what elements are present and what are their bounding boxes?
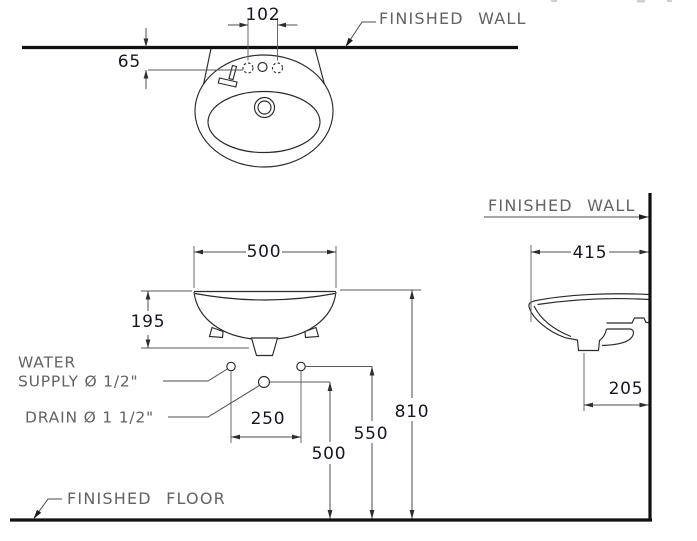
dim-value-65: 65: [118, 52, 141, 72]
drawing-canvas: 102 65 FINISHED WALL: [0, 0, 697, 541]
leader-arrow-icon: [346, 38, 353, 47]
basin-installation-drawing: 102 65 FINISHED WALL: [0, 0, 697, 541]
mounting-bracket-inner: [602, 329, 633, 346]
arrowhead-icon: [144, 70, 149, 79]
leader-line: [34, 499, 63, 519]
arrowhead-icon: [531, 250, 540, 255]
dim-supply-height: 550: [354, 367, 389, 520]
arrowhead-icon: [640, 250, 649, 255]
arrowhead-icon: [144, 39, 149, 48]
dim-value-500-height: 500: [312, 444, 347, 464]
dim-value-415: 415: [573, 243, 608, 263]
faucet-hole-left: [243, 63, 253, 73]
supply-point-left: [227, 362, 235, 370]
basin-rim-inner: [195, 294, 335, 301]
dim-basin-height: 195: [131, 291, 249, 348]
arrowhead-icon: [327, 250, 336, 255]
dim-basin-width: 500: [194, 242, 336, 288]
dim-value-500-width: 500: [247, 242, 282, 262]
arrowhead-icon: [292, 435, 301, 440]
arrowhead-icon: [328, 382, 333, 391]
drain-hole: [258, 101, 271, 114]
arrowhead-icon: [410, 290, 415, 299]
artifact-speck: [551, 0, 557, 2]
dim-basin-projection: 415: [531, 243, 649, 322]
faucet-hole-center: [258, 63, 267, 72]
arrowhead-icon: [410, 510, 415, 519]
water-supply-label-line1: WATER: [18, 354, 76, 372]
dim-drain-height: 500: [312, 382, 347, 519]
dim-value-810: 810: [395, 402, 430, 422]
mounting-bracket-top: [607, 318, 649, 323]
leader-arrow-icon: [34, 510, 42, 519]
arrowhead-icon: [328, 510, 333, 519]
drain-leader: [168, 386, 260, 418]
arrowhead-icon: [370, 510, 375, 519]
dim-rim-height: 810: [340, 290, 429, 519]
arrowhead-icon: [584, 403, 593, 408]
leader-line: [346, 22, 377, 47]
faucet-lever-handle-icon: [218, 78, 237, 87]
water-supply-label-line2: SUPPLY Ø 1/2": [18, 373, 138, 391]
side-view: FINISHED WALL 415 205: [484, 193, 650, 520]
drain-point: [259, 377, 270, 388]
dim-faucet-hole-spacing: 102: [228, 5, 298, 61]
basin-foot-right: [305, 328, 319, 338]
dim-value-195: 195: [131, 312, 166, 332]
arrowhead-icon: [370, 367, 375, 376]
front-view: 500 195 WATER SUPPLY Ø 1/2" DRAIN Ø 1 1/…: [10, 242, 652, 520]
finished-wall-callout-side: FINISHED WALL: [484, 196, 649, 220]
basin-tailpiece: [252, 338, 278, 356]
artifact-speck: [637, 0, 645, 3]
dim-drain-to-wall: 205: [584, 353, 649, 411]
basin-side-rim-inner: [538, 299, 649, 305]
arrowhead-icon: [146, 291, 151, 300]
finished-floor-callout: FINISHED FLOOR: [10, 489, 652, 520]
arrowhead-icon: [231, 435, 240, 440]
rough-in-points: WATER SUPPLY Ø 1/2" DRAIN Ø 1 1/2": [18, 354, 372, 427]
dim-value-550: 550: [354, 424, 389, 444]
finished-wall-callout-plan: FINISHED WALL: [346, 9, 527, 47]
arrowhead-icon: [640, 403, 649, 408]
finished-floor-label: FINISHED FLOOR: [67, 489, 226, 508]
dim-value-250: 250: [251, 409, 286, 429]
dim-value-205: 205: [609, 379, 644, 399]
finished-wall-label-side: FINISHED WALL: [488, 196, 636, 215]
dim-value-102: 102: [246, 5, 281, 25]
faucet-hole-right: [273, 63, 283, 73]
plan-view: 102 65 FINISHED WALL: [22, 5, 527, 167]
artifact-speck: [667, 0, 672, 2]
leader-arrow-icon: [639, 214, 649, 219]
arrowhead-icon: [194, 250, 203, 255]
finished-wall-label-plan: FINISHED WALL: [379, 9, 527, 28]
basin-back-right-edge: [315, 49, 325, 85]
drain-label: DRAIN Ø 1 1/2": [25, 409, 154, 427]
faucet-lever-stem-icon: [229, 66, 237, 80]
cropped-artifacts: [551, 0, 672, 3]
water-supply-leader: [163, 369, 227, 381]
arrowhead-icon: [146, 340, 151, 349]
supply-point-right: [297, 362, 305, 370]
